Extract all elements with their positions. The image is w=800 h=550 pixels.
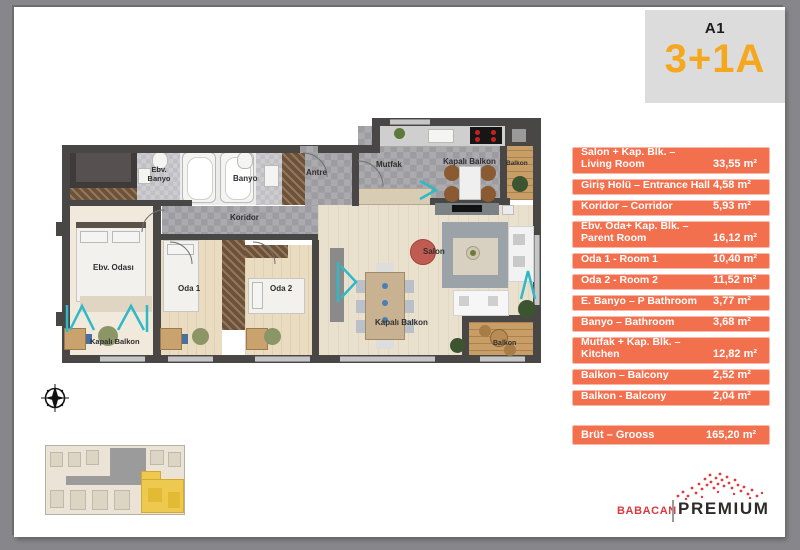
key-plan-highlight-unit	[141, 479, 184, 513]
key-plan-unit	[92, 490, 108, 510]
key-plan-unit	[86, 450, 99, 465]
room-label-salon: Salon	[423, 247, 445, 256]
unit-type-label: 3+1A	[645, 37, 785, 81]
area-row-salon: Salon + Kap. Blk. –Living Room33,55 m²	[572, 147, 770, 174]
key-plan-unit	[70, 490, 86, 510]
key-plan-highlight-room	[168, 492, 180, 508]
logo-dots-icon	[672, 472, 768, 502]
room-label-kapali-balkon-left: Kapalı Balkon	[90, 337, 140, 346]
area-row-balkon1: Balkon – Balcony2,52 m²	[572, 369, 770, 385]
key-plan-unit	[50, 490, 64, 508]
room-label-koridor: Koridor	[230, 213, 259, 222]
unit-block-code: A1	[645, 20, 785, 37]
key-plan-unit	[168, 452, 181, 467]
key-plan-unit	[114, 490, 130, 510]
area-row-koridor: Koridor – Corridor5,93 m²	[572, 200, 770, 216]
logo-brand-text: BABACAN	[617, 505, 677, 517]
brochure-canvas: Ebv. Banyo Banyo Koridor Antre Mutfak Ka…	[0, 0, 800, 550]
area-table: Salon + Kap. Blk. –Living Room33,55 m² G…	[572, 147, 770, 450]
area-row-balkon2: Balkon - Balcony2,04 m²	[572, 390, 770, 406]
room-label-oda1: Oda 1	[178, 284, 200, 293]
key-plan-unit	[68, 452, 81, 467]
area-row-ebanyo: E. Banyo – P Bathroom3,77 m²	[572, 295, 770, 311]
area-row-oda1: Oda 1 - Room 110,40 m²	[572, 253, 770, 269]
room-label-kapali-balkon-top: Kapalı Balkon	[443, 157, 496, 166]
room-label-antre: Antre	[306, 168, 327, 177]
room-label-kapali-balkon-center: Kapalı Balkon	[375, 318, 428, 327]
room-label-balkon-bottom: Balkon	[493, 340, 516, 347]
room-label-banyo: Banyo	[233, 174, 257, 183]
area-row-brut: Brüt – Grooss165,20 m²	[572, 425, 770, 445]
area-row-ebv-oda: Ebv. Oda+ Kap. Blk. –Parent Room16,12 m²	[572, 221, 770, 248]
key-plan-unit	[50, 452, 63, 467]
area-row-mutfak: Mutfak + Kap. Blk. –Kitchen12,82 m²	[572, 337, 770, 364]
area-row-banyo: Banyo – Bathroom3,68 m²	[572, 316, 770, 332]
compass-icon	[40, 380, 70, 416]
room-label-oda2: Oda 2	[270, 284, 292, 293]
room-label-mutfak: Mutfak	[376, 160, 402, 169]
key-plan-unit	[150, 450, 164, 465]
logo-divider	[672, 500, 674, 522]
room-label-ebv-banyo: Ebv. Banyo	[143, 165, 175, 183]
area-row-giris: Giriş Holü – Entrance Hall4,58 m²	[572, 179, 770, 195]
key-plan-highlight-room	[148, 488, 162, 502]
key-plan-hall	[66, 476, 146, 485]
unit-info-box: A1 3+1A	[645, 10, 785, 103]
area-row-oda2: Oda 2 - Room 211,52 m²	[572, 274, 770, 290]
room-label-balkon-top: Balkon	[506, 160, 528, 167]
key-plan	[45, 445, 185, 515]
logo-premium-text: PREMIUM	[678, 499, 769, 519]
room-label-ebv-odasi: Ebv. Odası	[93, 263, 134, 272]
